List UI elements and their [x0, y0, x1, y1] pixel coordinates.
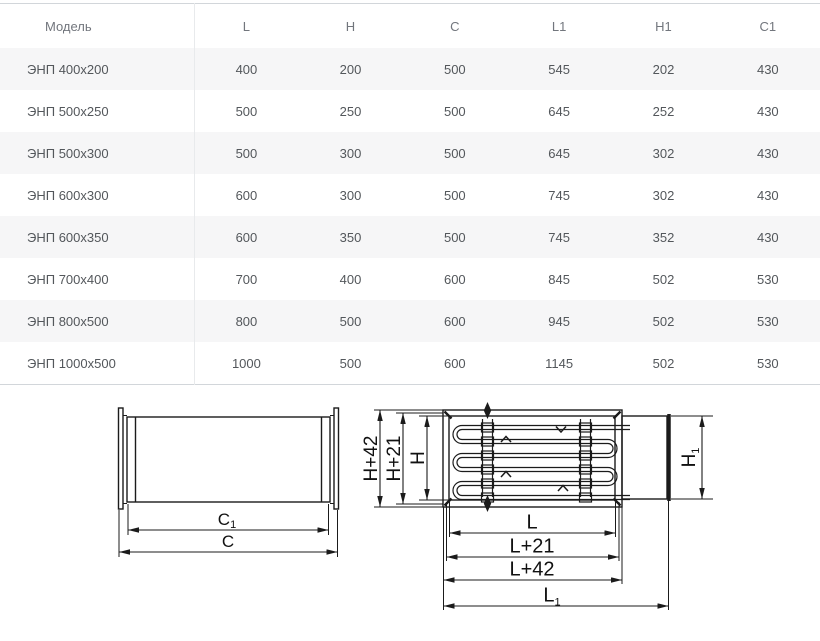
table-header-row: Модель L H C L1 H1 C1	[0, 4, 820, 49]
dim-label-l42: L+42	[509, 559, 554, 581]
dimension-h1: H1	[671, 416, 713, 499]
cell-h: 400	[298, 258, 402, 300]
cell-h: 300	[298, 174, 402, 216]
cell-c1: 430	[716, 90, 820, 132]
cell-h: 250	[298, 90, 402, 132]
cell-c1: 530	[716, 258, 820, 300]
cell-l: 400	[194, 48, 298, 90]
dimensions-table: Модель L H C L1 H1 C1 ЭНП 400x200 400 20…	[0, 3, 820, 385]
table-row: ЭНП 500x300 500 300 500 645 302 430	[0, 132, 820, 174]
dim-label-c: C	[222, 532, 234, 551]
cell-model: ЭНП 700x400	[0, 258, 194, 300]
table-row: ЭНП 500x250 500 250 500 645 252 430	[0, 90, 820, 132]
cell-l: 1000	[194, 342, 298, 385]
dim-label-h42: H+42	[361, 436, 382, 482]
table-row: ЭНП 600x300 600 300 500 745 302 430	[0, 174, 820, 216]
flange-plate-left	[119, 408, 124, 509]
column-header-h: H	[298, 4, 402, 49]
dim-label-l: L	[526, 512, 537, 534]
heater-plan-view: H+42 H+21 H H1 L L+21 L+42	[361, 402, 713, 610]
cell-c: 500	[403, 174, 507, 216]
flange-caps	[123, 416, 334, 504]
cell-l1: 945	[507, 300, 611, 342]
table-row: ЭНП 1000x500 1000 500 600 1145 502 530	[0, 342, 820, 385]
table-row: ЭНП 400x200 400 200 500 545 202 430	[0, 48, 820, 90]
table-row: ЭНП 700x400 700 400 600 845 502 530	[0, 258, 820, 300]
cell-c: 500	[403, 90, 507, 132]
dim-label-h1: H1	[679, 448, 702, 468]
cell-c1: 430	[716, 216, 820, 258]
dim-label-h21: H+21	[384, 436, 405, 482]
cell-l1: 645	[507, 90, 611, 132]
cell-c: 600	[403, 258, 507, 300]
cell-l1: 745	[507, 174, 611, 216]
column-header-h1: H1	[611, 4, 715, 49]
column-header-model: Модель	[0, 4, 194, 49]
cell-h1: 502	[611, 342, 715, 385]
column-header-l1: L1	[507, 4, 611, 49]
cell-c: 500	[403, 216, 507, 258]
bracket-bolt-bottom	[484, 495, 491, 512]
dim-label-l21: L+21	[509, 536, 554, 558]
cell-h: 500	[298, 300, 402, 342]
cell-c: 500	[403, 48, 507, 90]
dim-label-l1: L1	[543, 585, 560, 609]
cell-c1: 430	[716, 48, 820, 90]
cell-model: ЭНП 500x300	[0, 132, 194, 174]
cell-l1: 545	[507, 48, 611, 90]
bottom-extension-lines	[444, 501, 669, 610]
cell-l: 800	[194, 300, 298, 342]
duct-end-bands	[136, 417, 322, 502]
column-header-c: C	[403, 4, 507, 49]
flange-plate-right	[334, 408, 339, 509]
dimension-l21: L+21	[447, 536, 620, 558]
cell-c1: 430	[716, 132, 820, 174]
cell-model: ЭНП 800x500	[0, 300, 194, 342]
cell-l: 700	[194, 258, 298, 300]
cell-h1: 352	[611, 216, 715, 258]
cell-c: 500	[403, 132, 507, 174]
cell-c: 600	[403, 342, 507, 385]
cell-c1: 530	[716, 300, 820, 342]
cell-model: ЭНП 600x350	[0, 216, 194, 258]
cell-l1: 1145	[507, 342, 611, 385]
cell-h1: 302	[611, 174, 715, 216]
cell-model: ЭНП 1000x500	[0, 342, 194, 385]
duct-side-view: C1 C	[119, 408, 339, 557]
column-header-l: L	[194, 4, 298, 49]
cell-l1: 745	[507, 216, 611, 258]
dimension-l: L	[450, 512, 616, 534]
heating-coil	[453, 426, 630, 500]
cell-c1: 530	[716, 342, 820, 385]
cell-h1: 302	[611, 132, 715, 174]
dim-label-h: H	[408, 451, 429, 465]
table-row: ЭНП 800x500 800 500 600 945 502 530	[0, 300, 820, 342]
cell-l1: 845	[507, 258, 611, 300]
cell-h1: 252	[611, 90, 715, 132]
cell-model: ЭНП 500x250	[0, 90, 194, 132]
cell-h1: 202	[611, 48, 715, 90]
heater-frame-outer	[443, 410, 622, 507]
cell-l: 500	[194, 132, 298, 174]
cell-h1: 502	[611, 300, 715, 342]
cell-h: 500	[298, 342, 402, 385]
cell-h: 300	[298, 132, 402, 174]
column-header-c1: C1	[716, 4, 820, 49]
cell-c1: 430	[716, 174, 820, 216]
dimension-l1: L1	[444, 585, 669, 609]
cell-l: 600	[194, 174, 298, 216]
technical-drawings: C1 C	[0, 394, 820, 641]
cell-c: 600	[403, 300, 507, 342]
cell-model: ЭНП 400x200	[0, 48, 194, 90]
cell-model: ЭНП 600x300	[0, 174, 194, 216]
cell-h: 200	[298, 48, 402, 90]
table-row: ЭНП 600x350 600 350 500 745 352 430	[0, 216, 820, 258]
cell-l: 500	[194, 90, 298, 132]
cell-l: 600	[194, 216, 298, 258]
dimension-c1: C1	[128, 504, 329, 535]
cell-h1: 502	[611, 258, 715, 300]
dimension-l42: L+42	[444, 559, 623, 581]
terminal-box	[622, 416, 667, 499]
cell-h: 350	[298, 216, 402, 258]
cell-l1: 645	[507, 132, 611, 174]
mounting-bracket-right	[580, 419, 592, 502]
duct-body-outline	[127, 417, 330, 502]
dim-label-c1: C1	[218, 510, 236, 531]
